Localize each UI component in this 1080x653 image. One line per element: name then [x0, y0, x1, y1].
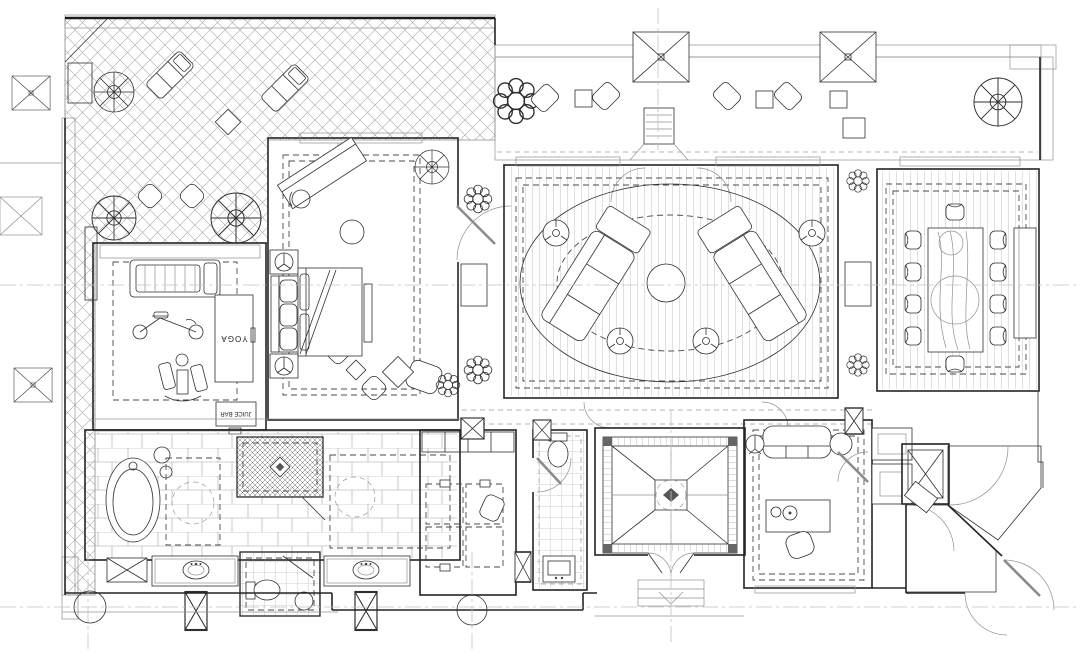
dressing-chair — [478, 493, 506, 523]
corridor — [95, 402, 876, 431]
stepper-machine — [158, 354, 208, 401]
umbrella-icon — [633, 32, 689, 82]
foyer — [595, 428, 745, 606]
center-table — [647, 264, 685, 302]
side-table — [543, 220, 569, 246]
bedroom-desk — [277, 137, 366, 208]
door-leaf — [1004, 560, 1040, 596]
dining-chair — [990, 231, 1006, 249]
side-table — [693, 328, 719, 354]
door-leaf — [457, 206, 495, 244]
plant — [847, 170, 869, 192]
door-opening — [455, 206, 461, 262]
armchair — [404, 358, 444, 395]
pouf — [340, 220, 364, 244]
potted-plant — [270, 354, 298, 378]
living-room — [504, 157, 838, 398]
dining-chair — [990, 327, 1006, 345]
column — [185, 592, 207, 630]
sideboard — [1014, 228, 1036, 338]
gym-room: YOGA JUICE BAR — [93, 243, 266, 434]
plant — [436, 373, 460, 397]
bed-bench — [364, 284, 372, 342]
window-sill — [755, 586, 855, 593]
tiled-floor — [906, 505, 996, 592]
plant — [464, 356, 492, 384]
dining-table — [928, 228, 983, 352]
gym-closet — [100, 245, 260, 258]
toilet — [548, 441, 568, 467]
potted-tree — [415, 150, 449, 184]
bathroom — [85, 430, 460, 560]
planter — [845, 262, 871, 306]
umbrella-icon — [820, 32, 876, 82]
floor-medallion — [603, 437, 737, 553]
tree — [211, 193, 261, 243]
study-sofa — [763, 426, 831, 458]
parapet-band-top — [495, 45, 1041, 57]
window-sill — [900, 157, 1020, 166]
toilet — [254, 580, 280, 600]
dining-chair — [946, 356, 964, 372]
tree — [94, 72, 134, 112]
column — [845, 408, 863, 434]
entry-vestibule — [872, 428, 1054, 635]
dining-chair — [905, 231, 921, 249]
plant — [464, 185, 492, 213]
column — [515, 552, 531, 582]
side-table — [607, 328, 633, 354]
terrace-chair — [772, 80, 803, 111]
terrace-top-floor — [495, 57, 1041, 160]
toilet-tank — [549, 433, 567, 441]
sink — [183, 561, 209, 579]
study — [744, 420, 872, 593]
treadmill — [130, 260, 220, 297]
parapet-band-right — [1040, 57, 1053, 160]
terrace-chair — [360, 374, 388, 402]
yoga-label: YOGA — [220, 334, 247, 343]
terrace-chair — [529, 82, 560, 113]
study-chair — [784, 529, 817, 560]
umbrella-icon — [12, 76, 50, 110]
dining-room — [877, 157, 1039, 391]
exercise-bike — [133, 312, 203, 339]
tree — [92, 196, 136, 240]
planter — [843, 118, 865, 138]
sink — [353, 561, 379, 579]
closet — [872, 464, 912, 504]
plant — [847, 354, 869, 376]
terrace-table — [346, 360, 366, 380]
side-table — [830, 433, 852, 455]
column — [533, 420, 551, 440]
striped-floor — [948, 446, 1041, 540]
column — [355, 592, 377, 630]
tree — [974, 78, 1022, 126]
side-table — [799, 220, 825, 246]
floor-plan-canvas: YOGA JUICE BAR — [0, 0, 1080, 653]
wc-center — [531, 430, 587, 590]
terrace-table — [575, 90, 592, 107]
dining-chair — [946, 204, 964, 220]
terrace-table — [830, 91, 847, 108]
dining-chair — [990, 263, 1006, 281]
potted-plant — [270, 250, 298, 274]
dining-chair — [905, 263, 921, 281]
dining-chair — [905, 295, 921, 313]
dining-chair — [905, 327, 921, 345]
wc-left-room — [240, 552, 320, 616]
umbrella-icon — [14, 368, 52, 402]
terrace-table — [756, 91, 773, 108]
living-dining-wall — [845, 170, 871, 376]
bedroom-sofa — [271, 276, 299, 352]
study-desk — [766, 500, 830, 532]
column — [461, 418, 484, 439]
terrace-chair — [711, 80, 742, 111]
door-leaf — [838, 452, 868, 482]
juice-bar-label: JUICE BAR — [220, 410, 252, 416]
terrace-chair — [590, 80, 621, 111]
dining-chair — [990, 295, 1006, 313]
bed — [298, 268, 372, 356]
